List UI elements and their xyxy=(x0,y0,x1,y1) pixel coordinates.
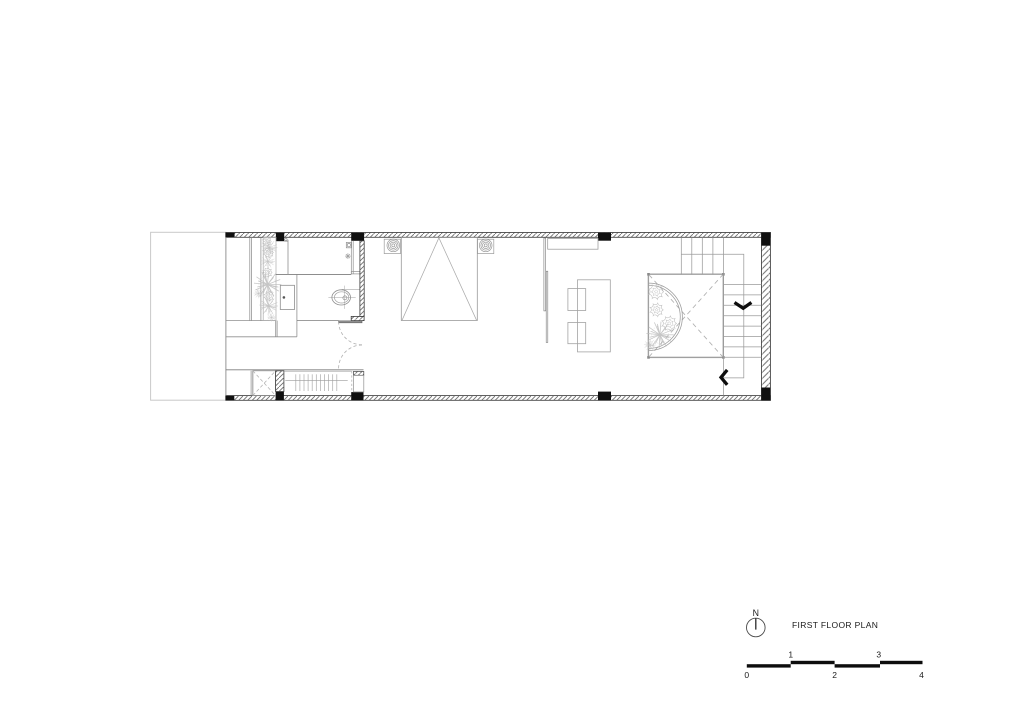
svg-text:3: 3 xyxy=(876,650,881,660)
svg-text:0: 0 xyxy=(744,670,749,680)
svg-text:1: 1 xyxy=(788,650,793,660)
svg-text:2: 2 xyxy=(832,670,837,680)
svg-text:4: 4 xyxy=(919,670,924,680)
svg-text:FIRST FLOOR PLAN: FIRST FLOOR PLAN xyxy=(792,620,878,630)
svg-text:N: N xyxy=(753,608,759,618)
